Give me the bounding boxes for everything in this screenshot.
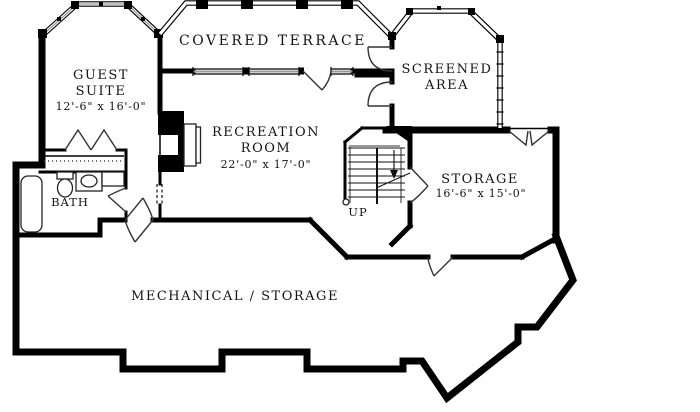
mech-door-2	[125, 220, 153, 242]
storage-door-west	[410, 167, 428, 203]
stair-arrow-head	[390, 170, 398, 179]
hearth	[196, 127, 201, 163]
fireplace	[158, 111, 201, 172]
wall-stub	[243, 68, 249, 75]
closet-door-right	[91, 130, 117, 150]
guest-suite-label-2: SUITE	[76, 84, 127, 99]
door-leaf	[303, 71, 322, 90]
bath-label: BATH	[51, 195, 89, 209]
post	[124, 1, 132, 9]
storage-dimensions: 16'-6" x 15'-0"	[436, 187, 527, 200]
storage-door-south	[428, 257, 453, 276]
screened-area-label-2: AREA	[424, 78, 469, 93]
door-screened-upper	[368, 47, 392, 71]
staircase	[343, 146, 410, 205]
recreation-room-label-1: RECREATION	[212, 125, 320, 140]
cased-opening	[157, 184, 162, 205]
post	[496, 35, 504, 43]
storage-label: STORAGE	[441, 172, 519, 187]
firebox	[184, 124, 196, 166]
guest-suite-label-1: GUEST	[73, 68, 129, 83]
toilet-tank	[57, 172, 73, 179]
post	[71, 1, 79, 9]
mech-door-1	[125, 198, 153, 220]
closet-door-left	[65, 130, 91, 150]
floor-plan-svg: GUEST SUITE 12'-6" x 16'-0" COVERED TERR…	[0, 0, 700, 412]
terrace-column	[296, 0, 308, 9]
covered-terrace-label: COVERED TERRACE	[179, 33, 367, 49]
post	[38, 29, 47, 38]
terrace-column	[241, 0, 253, 9]
recreation-room-label-2: ROOM	[241, 141, 291, 156]
mechanical-storage-label: MECHANICAL / STORAGE	[131, 289, 339, 304]
sink	[81, 175, 97, 187]
door-swing	[322, 71, 331, 90]
bath-door	[108, 188, 126, 212]
post	[468, 8, 475, 15]
terrace-column	[341, 0, 353, 9]
guest-suite-dimensions: 12'-6" x 16'-0"	[56, 100, 147, 113]
bathtub	[21, 176, 42, 232]
post	[406, 8, 413, 15]
terrace-column	[196, 0, 208, 9]
stair-up-label: UP	[348, 205, 367, 219]
recreation-room-dimensions: 22'-0" x 17'-0"	[221, 158, 312, 171]
window-band	[193, 67, 353, 76]
screened-area-label-1: SCREENED	[402, 62, 493, 77]
post	[388, 32, 396, 40]
door-screened-lower	[368, 82, 392, 106]
cabinet	[102, 172, 124, 186]
storage-door-top-left	[509, 131, 528, 145]
floor-plan-canvas: GUEST SUITE 12'-6" x 16'-0" COVERED TERR…	[0, 0, 700, 412]
storage-door-top-right	[530, 131, 549, 145]
